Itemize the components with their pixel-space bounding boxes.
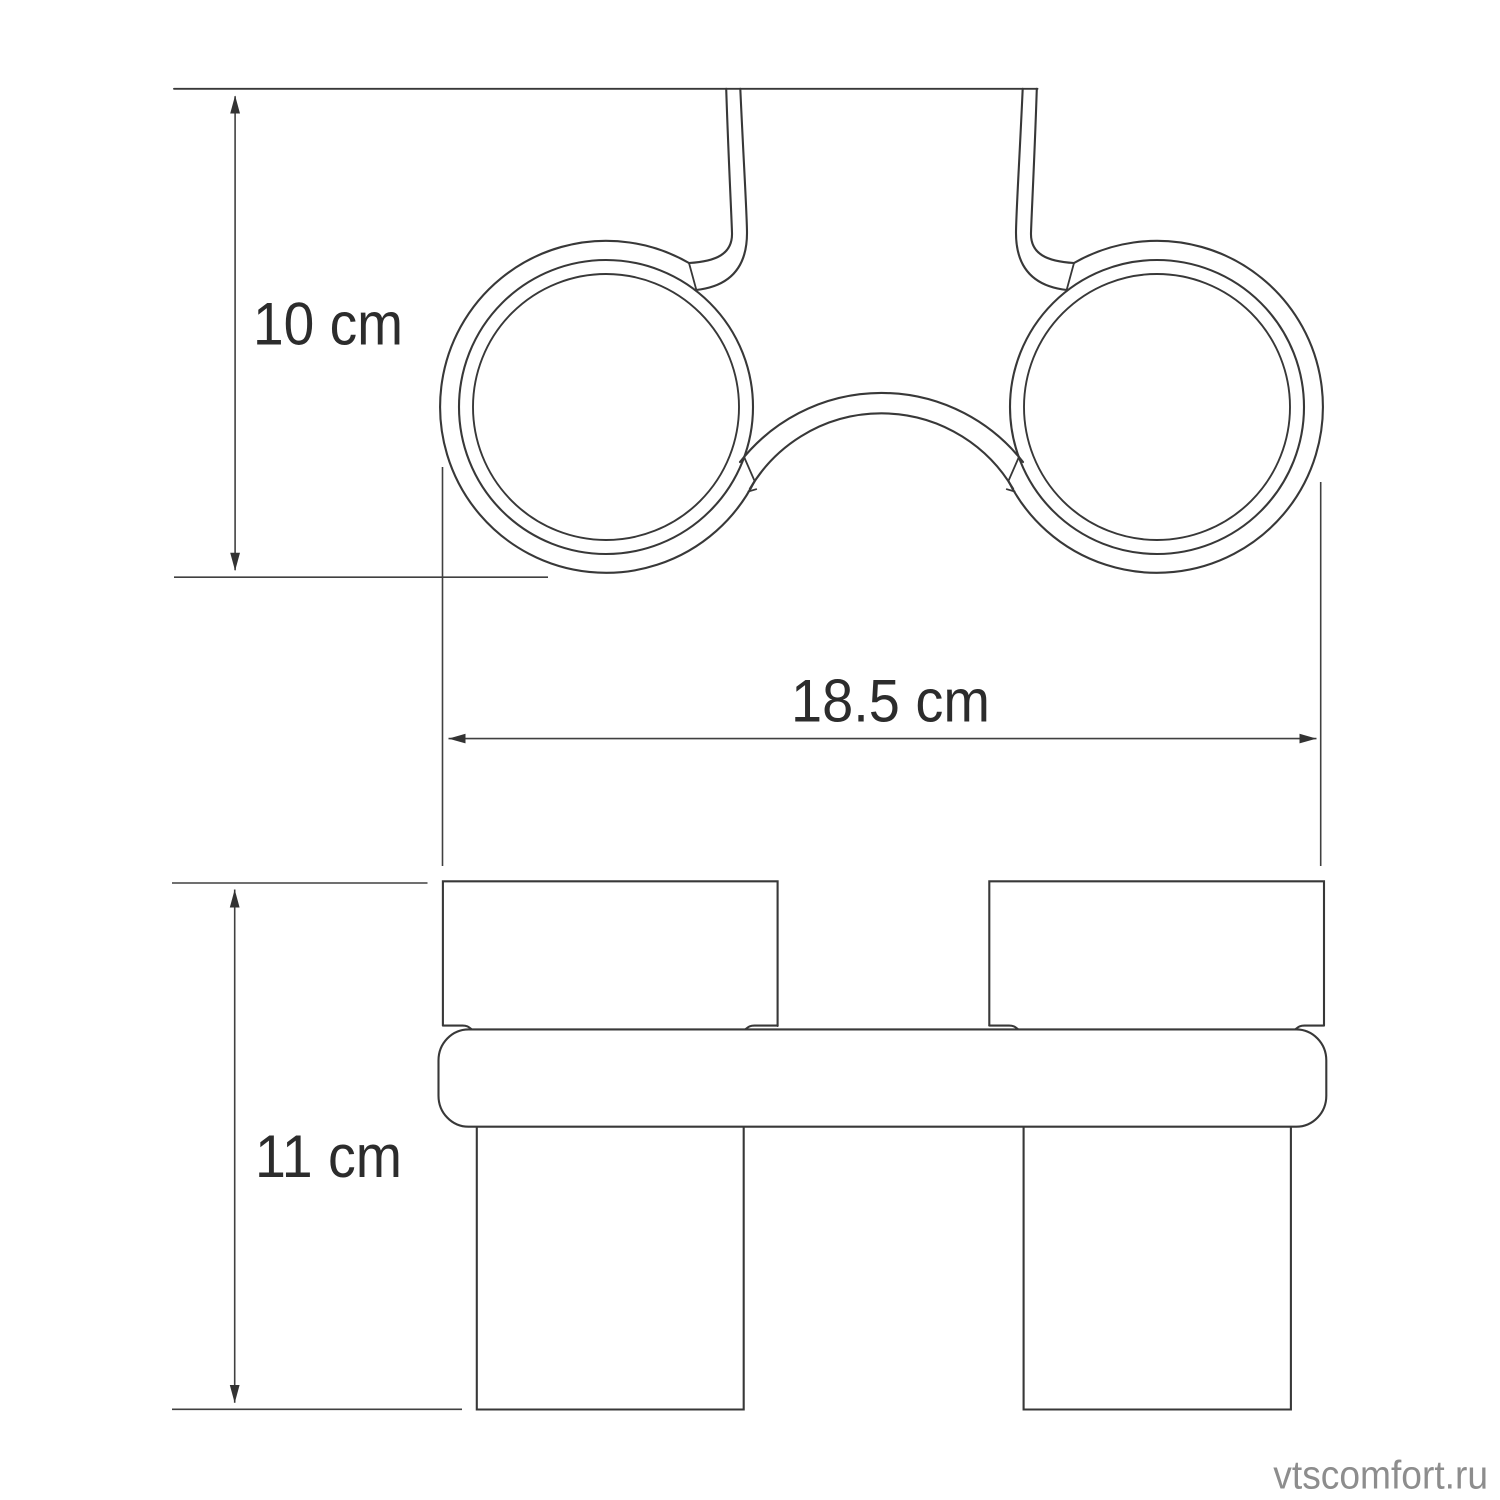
- svg-text:11 cm: 11 cm: [255, 1123, 402, 1190]
- svg-text:18.5 cm: 18.5 cm: [791, 668, 990, 735]
- svg-text:vtscomfort.ru: vtscomfort.ru: [1273, 1454, 1488, 1498]
- svg-text:10 cm: 10 cm: [253, 291, 403, 358]
